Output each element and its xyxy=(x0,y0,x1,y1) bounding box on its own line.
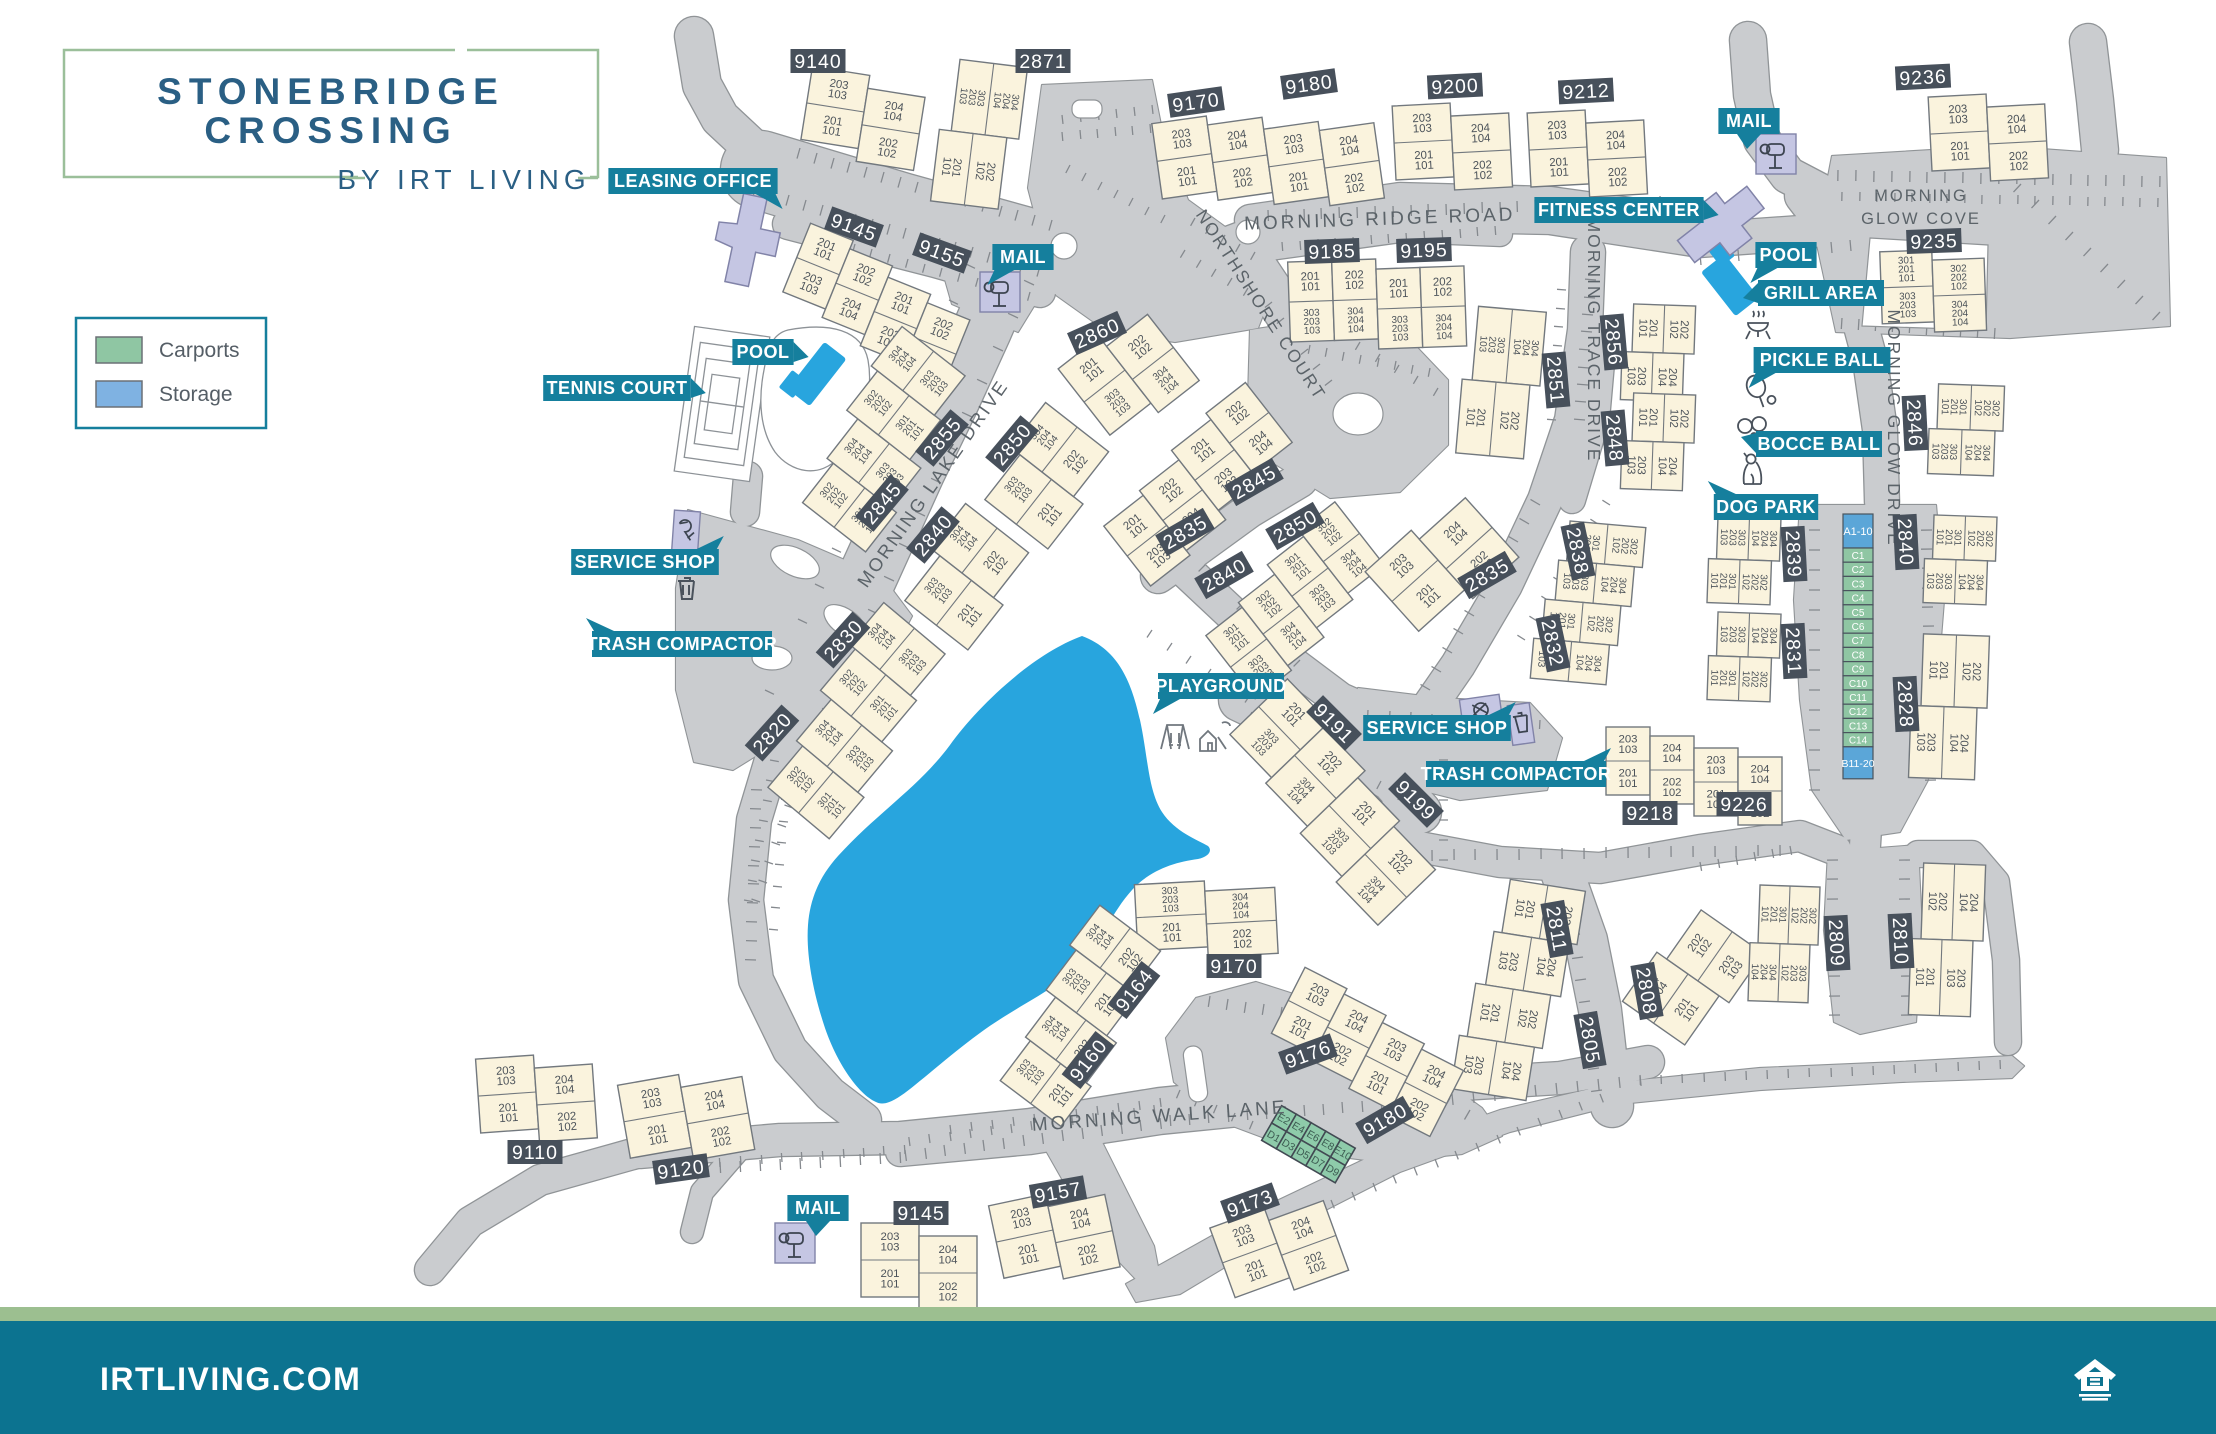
svg-text:304204104: 304204104 xyxy=(1510,338,1540,357)
svg-text:202102: 202102 xyxy=(1232,928,1252,951)
svg-text:202102: 202102 xyxy=(1514,1008,1539,1030)
svg-text:201101: 201101 xyxy=(1636,408,1659,428)
svg-text:302202102: 302202102 xyxy=(1739,670,1768,687)
svg-text:203103: 203103 xyxy=(1461,1054,1486,1076)
svg-text:202102: 202102 xyxy=(557,1110,578,1134)
svg-text:9200: 9200 xyxy=(1431,75,1479,99)
svg-text:202102: 202102 xyxy=(1667,409,1690,429)
svg-text:2809: 2809 xyxy=(1824,919,1848,967)
svg-text:203103: 203103 xyxy=(1948,103,1968,126)
svg-text:FITNESS CENTER: FITNESS CENTER xyxy=(1538,200,1700,220)
svg-text:LEASING OFFICE: LEASING OFFICE xyxy=(614,171,772,191)
svg-text:MORNING GLOW DRIVE: MORNING GLOW DRIVE xyxy=(1884,309,1904,546)
svg-text:202102: 202102 xyxy=(1232,166,1254,191)
svg-text:9110: 9110 xyxy=(512,1142,558,1164)
svg-text:203103: 203103 xyxy=(827,78,849,103)
svg-text:201101: 201101 xyxy=(1618,768,1637,790)
svg-text:203103: 203103 xyxy=(1944,968,1967,988)
svg-text:202102: 202102 xyxy=(1344,269,1364,292)
svg-text:302202102: 302202102 xyxy=(1739,573,1768,590)
svg-text:C8: C8 xyxy=(1852,650,1865,661)
svg-text:C6: C6 xyxy=(1852,622,1865,633)
svg-text:301201101: 301201101 xyxy=(1708,572,1737,590)
svg-text:C10: C10 xyxy=(1849,679,1868,690)
svg-text:304204104: 304204104 xyxy=(1748,963,1777,981)
svg-text:202102: 202102 xyxy=(938,1281,957,1303)
svg-text:303203103: 303203103 xyxy=(1161,885,1179,915)
svg-text:C11: C11 xyxy=(1849,693,1867,704)
svg-text:C1: C1 xyxy=(1852,551,1865,562)
svg-text:TENNIS COURT: TENNIS COURT xyxy=(547,378,688,398)
svg-text:201101: 201101 xyxy=(1636,319,1659,339)
svg-text:204104: 204104 xyxy=(1606,129,1626,152)
svg-text:303203102: 303203102 xyxy=(1778,964,1807,982)
svg-text:204104: 204104 xyxy=(554,1074,575,1098)
svg-text:203103: 203103 xyxy=(496,1065,517,1089)
svg-text:SERVICE SHOP: SERVICE SHOP xyxy=(1367,718,1508,738)
svg-text:PICKLE BALL: PICKLE BALL xyxy=(1760,350,1885,370)
svg-text:202102: 202102 xyxy=(1667,320,1690,340)
svg-text:DOG PARK: DOG PARK xyxy=(1716,497,1816,517)
svg-text:201101: 201101 xyxy=(1414,149,1434,172)
svg-text:204104: 204104 xyxy=(1227,128,1249,153)
svg-text:2840: 2840 xyxy=(1893,518,1917,566)
svg-text:304204104: 304204104 xyxy=(1749,530,1778,548)
svg-text:MAIL: MAIL xyxy=(1000,247,1046,267)
svg-text:MORNING: MORNING xyxy=(1874,187,1968,205)
svg-text:303203103: 303203103 xyxy=(1717,529,1746,547)
svg-text:204104: 204104 xyxy=(703,1088,726,1113)
svg-text:PLAYGROUND: PLAYGROUND xyxy=(1155,676,1286,696)
svg-text:SERVICE SHOP: SERVICE SHOP xyxy=(575,552,716,572)
svg-text:STONEBRIDGE: STONEBRIDGE xyxy=(157,71,505,112)
svg-text:303203103: 303203103 xyxy=(1924,572,1953,590)
svg-text:MAIL: MAIL xyxy=(795,1198,841,1218)
svg-text:203103: 203103 xyxy=(1618,734,1637,756)
svg-text:201101: 201101 xyxy=(1512,898,1537,920)
svg-text:302202102: 302202102 xyxy=(1609,536,1639,555)
svg-text:C14: C14 xyxy=(1849,736,1868,747)
svg-text:201101: 201101 xyxy=(1477,1002,1502,1024)
svg-text:BY IRT LIVING: BY IRT LIVING xyxy=(337,164,590,195)
svg-text:304204104: 304204104 xyxy=(1962,444,1991,462)
svg-text:201101: 201101 xyxy=(1950,140,1970,163)
svg-text:Carports: Carports xyxy=(159,339,240,362)
svg-text:201101: 201101 xyxy=(821,114,843,139)
svg-text:301201101: 301201101 xyxy=(1708,669,1737,687)
svg-text:304204104: 304204104 xyxy=(1598,575,1628,594)
svg-text:POOL: POOL xyxy=(736,342,789,362)
svg-text:203103: 203103 xyxy=(1412,112,1432,135)
svg-text:9185: 9185 xyxy=(1308,240,1356,264)
svg-text:303203103: 303203103 xyxy=(1391,314,1409,343)
svg-text:GLOW COVE: GLOW COVE xyxy=(1861,210,1981,228)
svg-text:203103: 203103 xyxy=(640,1086,663,1111)
svg-text:203103: 203103 xyxy=(1171,127,1193,152)
svg-text:9140: 9140 xyxy=(794,51,841,73)
svg-text:202102: 202102 xyxy=(1473,159,1493,182)
svg-text:TRASH COMPACTOR: TRASH COMPACTOR xyxy=(1421,764,1612,784)
svg-text:303203103: 303203103 xyxy=(1929,443,1958,461)
svg-text:2851: 2851 xyxy=(1542,356,1568,405)
svg-text:9212: 9212 xyxy=(1562,80,1610,104)
svg-text:CROSSING: CROSSING xyxy=(204,110,457,151)
svg-text:304204104: 304204104 xyxy=(1435,313,1453,342)
svg-text:202102: 202102 xyxy=(973,160,997,182)
svg-text:2831: 2831 xyxy=(1781,627,1805,675)
svg-text:201101: 201101 xyxy=(1389,278,1409,301)
svg-text:301201101: 301201101 xyxy=(1898,255,1916,284)
svg-text:204104: 204104 xyxy=(1498,1060,1523,1082)
svg-text:BOCCE BALL: BOCCE BALL xyxy=(1758,434,1881,454)
svg-text:201101: 201101 xyxy=(880,1268,899,1290)
svg-text:201101: 201101 xyxy=(1463,407,1487,428)
svg-text:201101: 201101 xyxy=(1162,922,1182,945)
svg-text:204104: 204104 xyxy=(1750,764,1769,786)
svg-text:302202102: 302202102 xyxy=(1788,907,1817,924)
svg-text:204104: 204104 xyxy=(1956,893,1979,913)
svg-text:9195: 9195 xyxy=(1400,239,1448,263)
svg-text:204104: 204104 xyxy=(1947,733,1970,753)
svg-text:2846: 2846 xyxy=(1902,399,1926,447)
svg-text:301201101: 301201101 xyxy=(1939,398,1968,416)
svg-text:302202102: 302202102 xyxy=(1950,263,1967,292)
svg-text:303203103: 303203103 xyxy=(1476,335,1506,354)
svg-text:201101: 201101 xyxy=(1176,165,1198,190)
svg-text:301201101: 301201101 xyxy=(1758,906,1787,924)
svg-text:303203103: 303203103 xyxy=(1717,626,1746,644)
svg-text:2810: 2810 xyxy=(1888,917,1912,965)
svg-text:POOL: POOL xyxy=(1759,245,1812,265)
svg-text:304204104: 304204104 xyxy=(1955,573,1984,591)
svg-text:GRILL AREA: GRILL AREA xyxy=(1764,283,1878,303)
svg-text:202102: 202102 xyxy=(1926,892,1949,912)
svg-text:203103: 203103 xyxy=(1706,755,1725,777)
svg-text:Storage: Storage xyxy=(159,383,233,406)
svg-text:201101: 201101 xyxy=(498,1102,519,1126)
svg-text:203103: 203103 xyxy=(1283,133,1305,158)
svg-text:201101: 201101 xyxy=(1913,967,1936,987)
svg-text:304204104: 304204104 xyxy=(1573,654,1603,673)
svg-text:304204104: 304204104 xyxy=(1347,306,1365,335)
svg-text:203103: 203103 xyxy=(1495,950,1520,972)
svg-text:201101: 201101 xyxy=(647,1123,670,1148)
svg-text:202102: 202102 xyxy=(876,136,898,161)
svg-text:202102: 202102 xyxy=(1662,777,1681,799)
svg-text:2839: 2839 xyxy=(1781,530,1805,578)
svg-text:204104: 204104 xyxy=(882,99,904,124)
svg-text:2828: 2828 xyxy=(1893,680,1917,728)
svg-text:C5: C5 xyxy=(1852,608,1865,619)
svg-text:301201101: 301201101 xyxy=(1933,529,1962,547)
svg-text:202102: 202102 xyxy=(1433,276,1453,299)
svg-text:9218: 9218 xyxy=(1626,803,1673,825)
svg-text:302202102: 302202102 xyxy=(1584,614,1614,633)
svg-text:2856: 2856 xyxy=(1600,318,1626,367)
svg-text:2871: 2871 xyxy=(1019,51,1066,73)
svg-text:TRASH COMPACTOR: TRASH COMPACTOR xyxy=(587,634,778,654)
svg-text:9226: 9226 xyxy=(1720,794,1767,816)
svg-text:202102: 202102 xyxy=(1497,410,1521,431)
svg-text:204104: 204104 xyxy=(1662,743,1681,765)
svg-text:202102: 202102 xyxy=(710,1125,733,1150)
svg-text:203103: 203103 xyxy=(880,1231,899,1253)
svg-text:302202102: 302202102 xyxy=(1965,530,1994,547)
svg-text:204104: 204104 xyxy=(1338,134,1360,159)
svg-text:201101: 201101 xyxy=(1300,271,1320,294)
svg-text:203103: 203103 xyxy=(1547,119,1567,142)
svg-text:203103: 203103 xyxy=(1914,732,1937,752)
svg-text:B11-20: B11-20 xyxy=(1841,758,1874,770)
svg-text:9236: 9236 xyxy=(1899,66,1947,90)
svg-text:202102: 202102 xyxy=(1344,172,1366,197)
svg-text:203103: 203103 xyxy=(1624,366,1647,386)
svg-text:204104: 204104 xyxy=(1471,122,1491,145)
svg-text:C3: C3 xyxy=(1852,579,1865,590)
svg-text:C13: C13 xyxy=(1849,721,1868,732)
svg-text:201101: 201101 xyxy=(1926,661,1949,681)
svg-text:201101: 201101 xyxy=(939,156,963,178)
svg-text:C12: C12 xyxy=(1849,707,1868,718)
svg-text:C7: C7 xyxy=(1852,636,1865,647)
svg-text:302202102: 302202102 xyxy=(1972,399,2001,416)
svg-text:303203103: 303203103 xyxy=(1303,307,1321,336)
svg-text:9235: 9235 xyxy=(1910,230,1958,254)
svg-text:204104: 204104 xyxy=(1533,956,1558,978)
svg-text:204104: 204104 xyxy=(2007,113,2027,136)
svg-text:C4: C4 xyxy=(1852,594,1865,605)
svg-text:2848: 2848 xyxy=(1601,414,1627,463)
svg-text:MAIL: MAIL xyxy=(1726,111,1772,131)
svg-text:MORNING TRACE DRIVE: MORNING TRACE DRIVE xyxy=(1584,218,1604,463)
svg-text:C2: C2 xyxy=(1852,565,1865,576)
svg-text:204104: 204104 xyxy=(1655,456,1678,476)
svg-text:304204104: 304204104 xyxy=(1749,627,1778,645)
svg-text:201101: 201101 xyxy=(1288,170,1310,195)
svg-text:202102: 202102 xyxy=(1959,662,1982,682)
svg-text:202102: 202102 xyxy=(2009,150,2029,173)
svg-text:A1-10: A1-10 xyxy=(1843,526,1872,538)
svg-text:9170: 9170 xyxy=(1210,956,1257,978)
svg-text:C9: C9 xyxy=(1852,665,1865,676)
svg-text:9145: 9145 xyxy=(897,1203,944,1225)
svg-text:202102: 202102 xyxy=(1608,166,1628,189)
svg-text:204104: 204104 xyxy=(938,1244,957,1266)
svg-text:304204104: 304204104 xyxy=(1951,299,1969,328)
svg-text:IRTLIVING.COM: IRTLIVING.COM xyxy=(100,1361,361,1397)
svg-text:201101: 201101 xyxy=(1549,156,1569,179)
svg-text:304204104: 304204104 xyxy=(1232,892,1250,922)
svg-text:204104: 204104 xyxy=(1655,367,1678,387)
